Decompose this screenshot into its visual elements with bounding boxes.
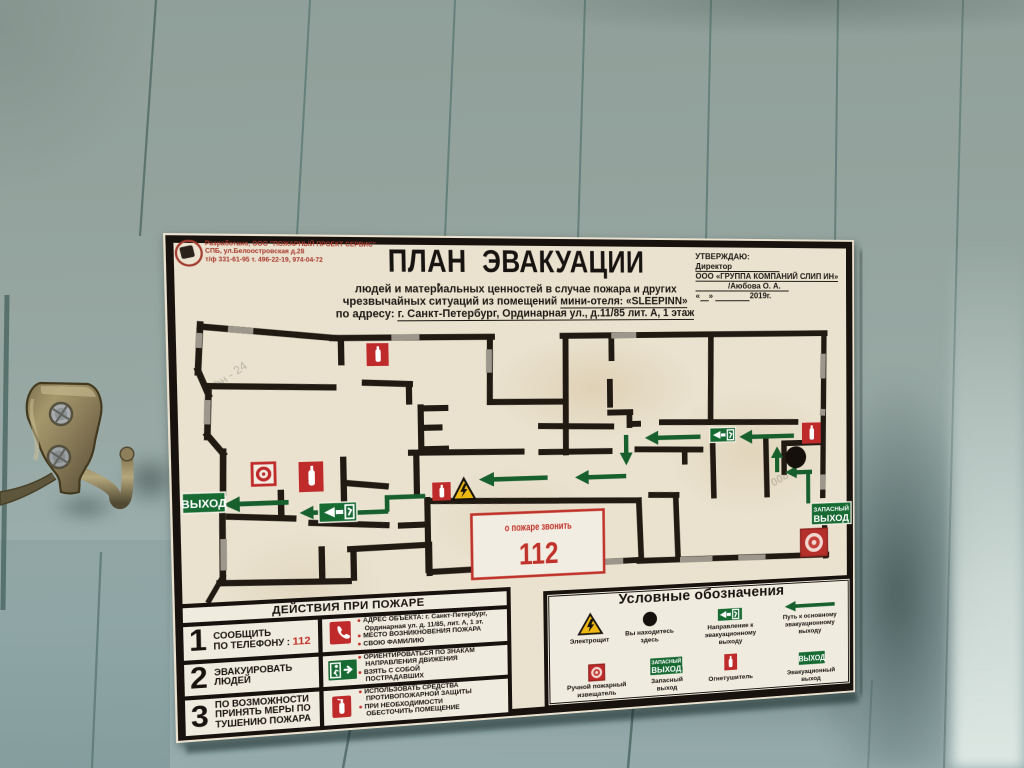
svg-text:112: 112 [519, 536, 559, 572]
svg-text:ВЫХОД: ВЫХОД [813, 511, 849, 524]
svg-text:ВЫХОД: ВЫХОД [181, 497, 227, 512]
